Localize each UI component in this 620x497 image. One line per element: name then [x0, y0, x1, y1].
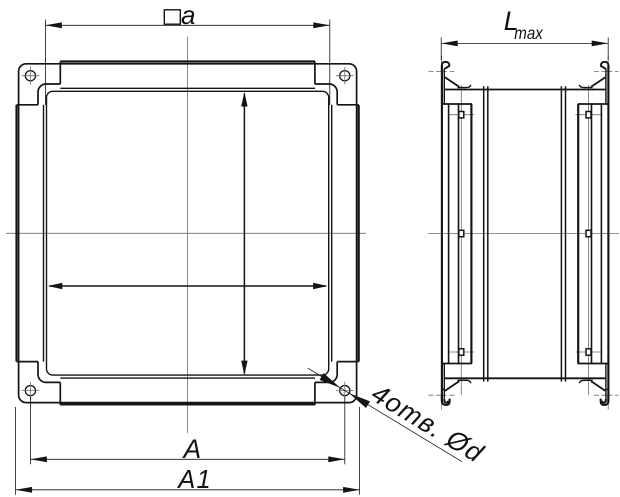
svg-text:a: a	[181, 0, 195, 30]
svg-text:A: A	[182, 434, 202, 464]
svg-text:A1: A1	[176, 466, 212, 494]
svg-text:max: max	[514, 23, 544, 43]
svg-text:4отв. Ød: 4отв. Ød	[366, 378, 489, 469]
